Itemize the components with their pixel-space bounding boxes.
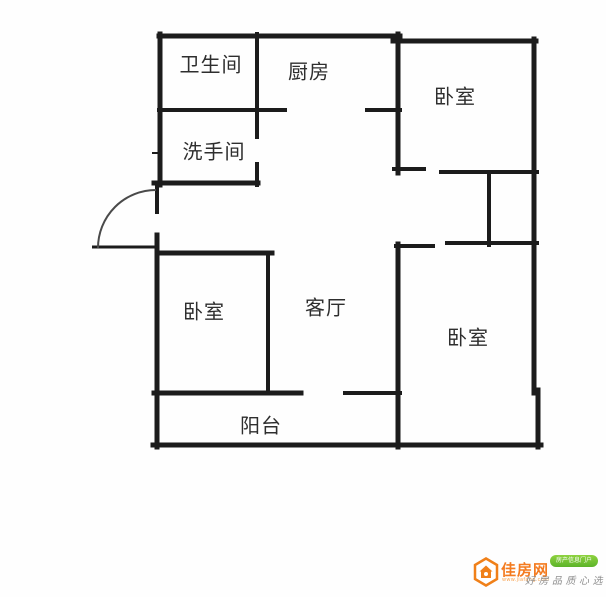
room-label-washroom: 洗手间 bbox=[183, 136, 246, 165]
room-label-living-room: 客厅 bbox=[305, 292, 347, 321]
walls bbox=[153, 34, 541, 447]
entry-door-arc bbox=[98, 190, 156, 248]
jiafang-hexagon-logo-icon bbox=[473, 557, 499, 587]
watermark-badge: 房产信息门户 bbox=[550, 555, 598, 567]
floorplan-image: 卫生间 厨房 卧室 洗手间 卧室 客厅 卧室 阳台 佳房网 www.jiafan… bbox=[0, 0, 606, 597]
room-label-bathroom: 卫生间 bbox=[180, 49, 243, 78]
room-label-bedroom-left: 卧室 bbox=[183, 296, 225, 325]
watermark-slogan: 好房品质心选 bbox=[525, 572, 606, 587]
room-label-balcony: 阳台 bbox=[240, 410, 282, 439]
watermark: 佳房网 www.jiafang.com 房产信息门户 好房品质心选 bbox=[473, 551, 605, 595]
entry-door bbox=[92, 190, 157, 248]
room-label-bedroom-top-right: 卧室 bbox=[434, 81, 476, 110]
floorplan-walls bbox=[0, 0, 606, 597]
room-label-bedroom-right: 卧室 bbox=[447, 322, 489, 351]
room-label-kitchen: 厨房 bbox=[288, 56, 330, 85]
